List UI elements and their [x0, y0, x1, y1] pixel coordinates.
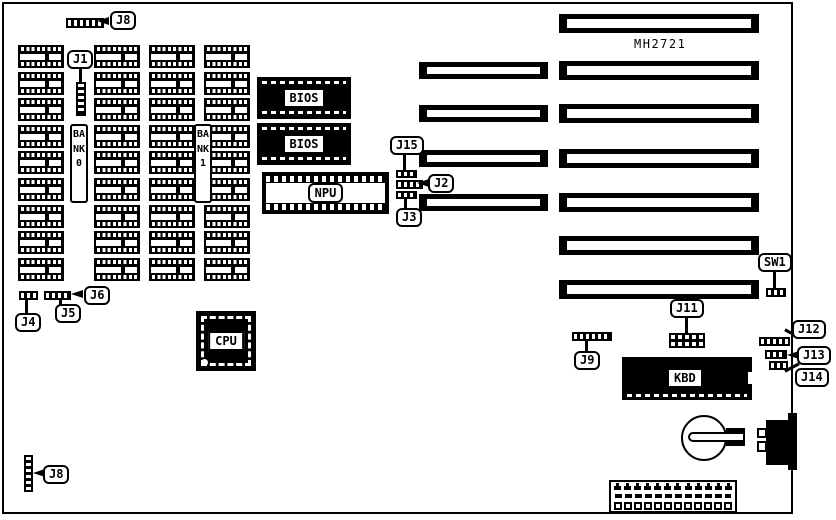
- j13-header: [765, 350, 787, 359]
- memory-dip-chip: [94, 205, 140, 228]
- expansion-slot: [559, 14, 759, 33]
- j9-header: [572, 332, 612, 341]
- power-socket: [634, 502, 642, 510]
- keyboard-connector-step: [788, 464, 797, 470]
- expansion-slot: [559, 280, 759, 299]
- expansion-slot: [559, 193, 759, 212]
- j9-callout: J9: [574, 351, 600, 370]
- memory-dip-chip: [18, 98, 64, 121]
- memory-dip-chip: [149, 231, 195, 254]
- power-socket: [644, 502, 652, 510]
- memory-dip-chip: [94, 125, 140, 148]
- power-pin: [715, 483, 722, 490]
- leader-line: [773, 270, 776, 288]
- power-pin: [685, 483, 692, 490]
- memory-dip-chip: [149, 125, 195, 148]
- chip-pin-row: [262, 111, 346, 114]
- memory-dip-chip: [204, 45, 250, 68]
- memory-dip-chip: [204, 72, 250, 95]
- expansion-slot: [419, 105, 548, 122]
- j1-header: [76, 82, 86, 116]
- chip-pin-row: [262, 81, 346, 84]
- power-socket: [714, 502, 722, 510]
- expansion-slot: [559, 61, 759, 80]
- expansion-slot: [559, 149, 759, 168]
- power-socket: [674, 502, 682, 510]
- chip-notch: [748, 372, 752, 384]
- bios1-label: BIOS: [285, 90, 324, 106]
- power-socket: [694, 502, 702, 510]
- j2-callout: J2: [428, 174, 454, 193]
- memory-dip-chip: [204, 231, 250, 254]
- j3-header: [396, 191, 417, 199]
- power-pin: [695, 483, 702, 490]
- memory-dip-chip: [18, 125, 64, 148]
- j1-callout: J1: [67, 50, 93, 69]
- expansion-slot: [419, 194, 548, 211]
- j15-header: [396, 170, 417, 178]
- power-socket: [624, 502, 632, 510]
- memory-dip-chip: [18, 151, 64, 174]
- j8-top-callout: J8: [110, 11, 136, 30]
- memory-dip-chip: [18, 258, 64, 281]
- memory-dip-chip: [18, 231, 64, 254]
- memory-dip-chip: [149, 258, 195, 281]
- cpu-chip: CPU: [196, 311, 256, 371]
- cpu-pin1-dot: [201, 359, 208, 366]
- power-pin: [674, 483, 681, 490]
- memory-dip-chip: [94, 72, 140, 95]
- j4-callout: J4: [15, 313, 41, 332]
- battery-clip-arm: [688, 432, 745, 442]
- j5-j6-header: [44, 291, 71, 300]
- power-socket: [614, 502, 622, 510]
- expansion-slot: [559, 104, 759, 123]
- expansion-slot: [419, 150, 548, 167]
- socket-pin-row: [266, 204, 385, 210]
- j12-header: [759, 337, 790, 346]
- j4-header: [19, 291, 38, 300]
- keyboard-connector: [766, 420, 797, 465]
- j15-callout: J15: [390, 136, 424, 155]
- power-socket-row: [614, 502, 732, 510]
- power-pin: [644, 483, 651, 490]
- board-model-label: MH2721: [634, 37, 686, 51]
- sw1-callout: SW1: [758, 253, 792, 272]
- memory-dip-chip: [149, 151, 195, 174]
- memory-dip-chip: [149, 72, 195, 95]
- memory-dip-chip: [94, 178, 140, 201]
- power-pin-row: [614, 483, 732, 490]
- memory-dip-chip: [18, 178, 64, 201]
- j13-callout: J13: [797, 346, 831, 365]
- memory-dip-chip: [94, 151, 140, 174]
- chip-pin-row: [262, 127, 346, 130]
- power-pin: [664, 483, 671, 490]
- power-pin: [705, 483, 712, 490]
- power-socket: [684, 502, 692, 510]
- memory-dip-chip: [18, 205, 64, 228]
- leader-line: [25, 300, 28, 314]
- memory-dip-chip: [18, 72, 64, 95]
- chip-pin-row: [262, 157, 346, 160]
- power-pin: [634, 483, 641, 490]
- j6-callout: J6: [84, 286, 110, 305]
- bank1-label: BANK1: [194, 124, 212, 203]
- kbd-chip: KBD: [622, 357, 752, 400]
- power-socket: [664, 502, 672, 510]
- bios2-label: BIOS: [285, 136, 324, 152]
- power-pin: [725, 483, 732, 490]
- leader-line: [403, 153, 406, 170]
- bios-chip-2: BIOS: [257, 123, 351, 165]
- power-socket: [654, 502, 662, 510]
- memory-dip-chip: [149, 45, 195, 68]
- cpu-label: CPU: [208, 331, 244, 351]
- npu-body: NPU: [266, 183, 385, 203]
- memory-dip-chip: [94, 98, 140, 121]
- expansion-slot: [419, 62, 548, 79]
- keyboard-connector-pin: [757, 441, 767, 452]
- motherboard-diagram: MH2721 BANK0 BANK1 BIOS BIOS NPU: [0, 0, 836, 520]
- memory-dip-chip: [149, 98, 195, 121]
- power-pin: [624, 483, 631, 490]
- j8-bottom-callout: J8: [43, 465, 69, 484]
- j5-callout: J5: [55, 304, 81, 323]
- power-pin: [614, 483, 621, 490]
- board-outline: MH2721 BANK0 BANK1 BIOS BIOS NPU: [2, 2, 793, 514]
- chip-pin-row: [627, 394, 747, 397]
- memory-dip-chip: [94, 258, 140, 281]
- bank0-label: BANK0: [70, 124, 88, 203]
- leader-line: [685, 317, 688, 334]
- j11-callout: J11: [670, 299, 704, 318]
- expansion-slot: [559, 236, 759, 255]
- j12-callout: J12: [792, 320, 826, 339]
- memory-dip-chip: [204, 258, 250, 281]
- keyboard-connector-pin: [757, 428, 767, 438]
- memory-dip-chip: [149, 178, 195, 201]
- leader-arrow: [97, 17, 109, 25]
- memory-dip-chip: [94, 45, 140, 68]
- power-socket: [704, 502, 712, 510]
- memory-dip-chip: [94, 231, 140, 254]
- memory-dip-chip: [204, 98, 250, 121]
- bios-chip-1: BIOS: [257, 77, 351, 119]
- npu-socket: NPU: [262, 172, 389, 214]
- sw1-switch: [766, 288, 786, 297]
- kbd-label: KBD: [669, 370, 701, 386]
- power-pin: [654, 483, 661, 490]
- memory-dip-chip: [204, 205, 250, 228]
- power-connector-body: [615, 494, 731, 498]
- leader-arrow: [71, 290, 83, 298]
- j11-header: [669, 333, 705, 348]
- npu-label: NPU: [308, 183, 344, 203]
- power-socket: [724, 502, 732, 510]
- socket-pin-row: [266, 176, 385, 182]
- j3-callout: J3: [396, 208, 422, 227]
- j14-callout: J14: [795, 368, 829, 387]
- memory-dip-chip: [18, 45, 64, 68]
- memory-dip-chip: [149, 205, 195, 228]
- power-connector: [609, 480, 737, 513]
- j8-bottom-header: [24, 455, 33, 492]
